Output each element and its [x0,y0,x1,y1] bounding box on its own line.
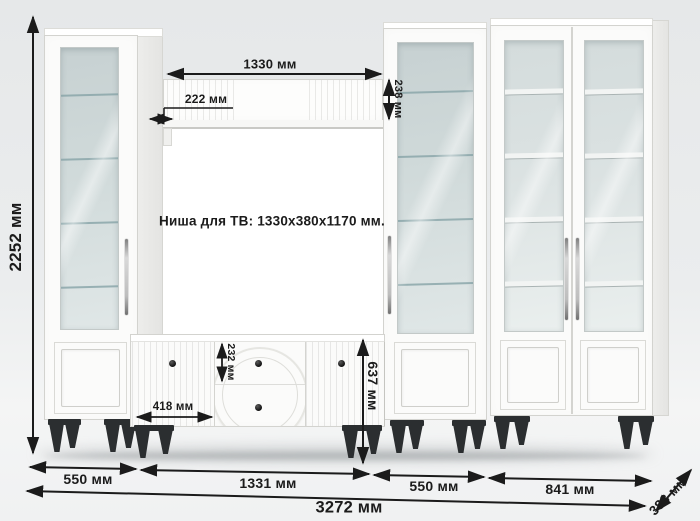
left-cabinet-legs [48,419,81,453]
dim-right-width-label: 550 мм [409,478,458,494]
shelf-board [585,216,643,223]
bridge-flute-right [309,80,379,120]
glass-shelf [61,221,118,225]
glass-shelf [398,154,473,158]
wide-cabinet-side [652,20,669,416]
dim-niche-width-label: 1330 мм [243,57,296,72]
tv-stand-legs [342,425,382,459]
tv-niche-note: Ниша для ТВ: 1330x380x1170 мм. [159,214,385,229]
dim-stand-height-label: 637 мм [365,361,381,410]
tv-stand-top-edge [131,335,384,342]
glass-shelf [61,157,118,161]
tv-stand-left-knob [169,360,176,367]
wide-cabinet-glass-door-right [584,40,644,332]
right-cabinet-handle [388,236,391,314]
right-cabinet-glass-door [397,42,474,334]
wide-cabinet-glass-door-left [504,40,564,332]
dim-overhang-label: 222 мм [185,92,227,106]
dim-right-width-line [374,475,484,477]
right-cabinet-lower-door [394,342,476,414]
left-cabinet-glass-door [60,47,119,330]
glass-shelf [61,285,118,289]
shelf-board [505,280,563,287]
dim-door-width-label: 418 мм [153,401,194,413]
drawer-top-knob [255,360,262,367]
tv-stand-legs [134,425,174,459]
shelf-board [505,88,563,95]
dim-drawer-height-label: 232 мм [225,343,237,380]
left-cabinet-lower-door [54,342,127,414]
furniture-dimension-diagram: 2252 мм 1330 мм 222 мм 238 мм Ниша для Т… [0,0,700,521]
bridge-bracket [163,128,172,146]
shelf-board [585,152,643,159]
drawer-bottom-knob [255,404,262,411]
right-cabinet-legs [452,420,486,454]
drawer-gap [215,384,305,385]
glass-shelf [61,93,118,97]
dim-depth-label: 383 мм [646,474,690,519]
dim-left-width-line [30,467,136,469]
dim-wide-width-label: 841 мм [545,481,594,497]
shelf-board [505,152,563,159]
dim-shelf-height-label: 238 мм [392,80,404,119]
wide-cabinet-handle-left [565,238,568,320]
wide-cabinet-handle-right [576,238,579,320]
glass-shelf [398,218,473,222]
bridge-shelf-lip [149,120,385,129]
dim-left-width-label: 550 мм [63,471,112,487]
shelf-board [585,88,643,95]
tv-stand-left-door-flute [132,342,214,426]
glass-shelf [398,282,473,286]
wide-cabinet-legs [618,416,654,450]
dim-niche-floor-label: 1331 мм [239,475,296,491]
dim-total-height-label: 2252 мм [6,202,26,271]
wide-cabinet-door-gap [571,27,573,414]
wide-cabinet-legs [494,416,530,450]
glass-shelf [398,90,473,94]
tv-stand-right-knob [338,360,345,367]
tv-stand-left-door [132,342,214,426]
left-cabinet-handle [125,239,128,315]
dim-total-width-label: 3272 мм [315,499,382,518]
wide-cabinet-lower-panel-left [500,340,566,410]
wide-cabinet-lower-panel-right [580,340,646,410]
dim-niche-floor-line [141,470,369,474]
shelf-board [585,280,643,287]
tv-stand [130,334,385,427]
shelf-board [505,216,563,223]
right-cabinet-legs [390,420,424,454]
